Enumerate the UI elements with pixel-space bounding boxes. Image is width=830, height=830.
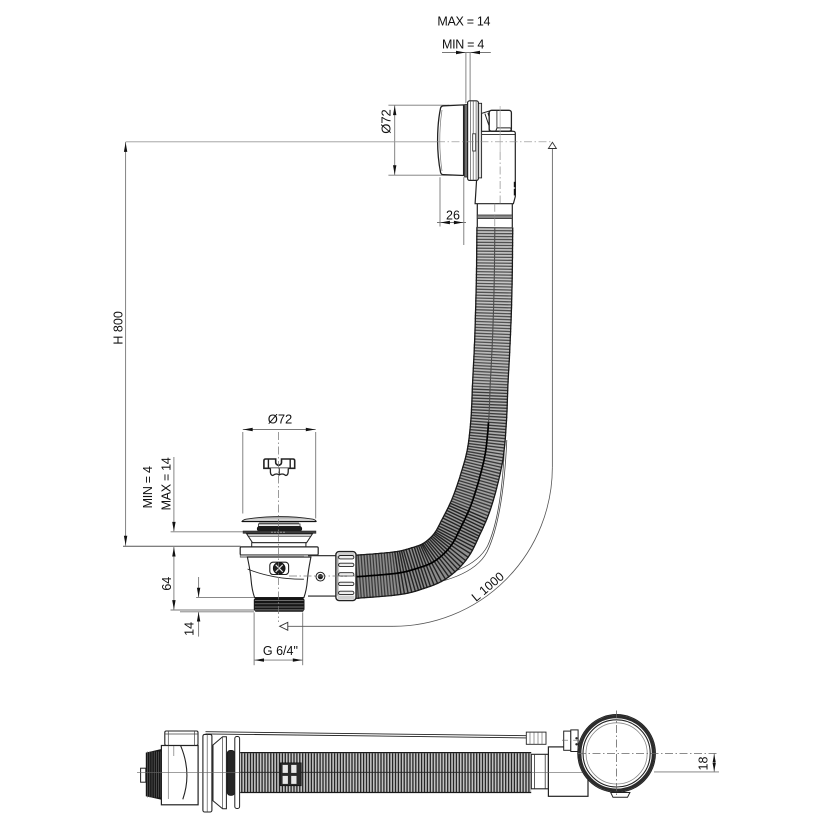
svg-text:MAX = 14: MAX = 14 (437, 15, 490, 29)
svg-text:26: 26 (446, 209, 460, 223)
svg-text:MIN = 4: MIN = 4 (141, 466, 155, 508)
svg-text:MAX = 14: MAX = 14 (160, 457, 174, 510)
svg-text:14: 14 (183, 622, 197, 636)
svg-text:Ø72: Ø72 (268, 411, 293, 426)
svg-text:H 800: H 800 (111, 311, 125, 344)
svg-text:G 6/4": G 6/4" (263, 644, 298, 658)
svg-text:64: 64 (160, 577, 174, 591)
svg-text:18: 18 (697, 757, 711, 771)
svg-text:Ø72: Ø72 (379, 109, 394, 134)
svg-text:MIN = 4: MIN = 4 (442, 38, 484, 52)
